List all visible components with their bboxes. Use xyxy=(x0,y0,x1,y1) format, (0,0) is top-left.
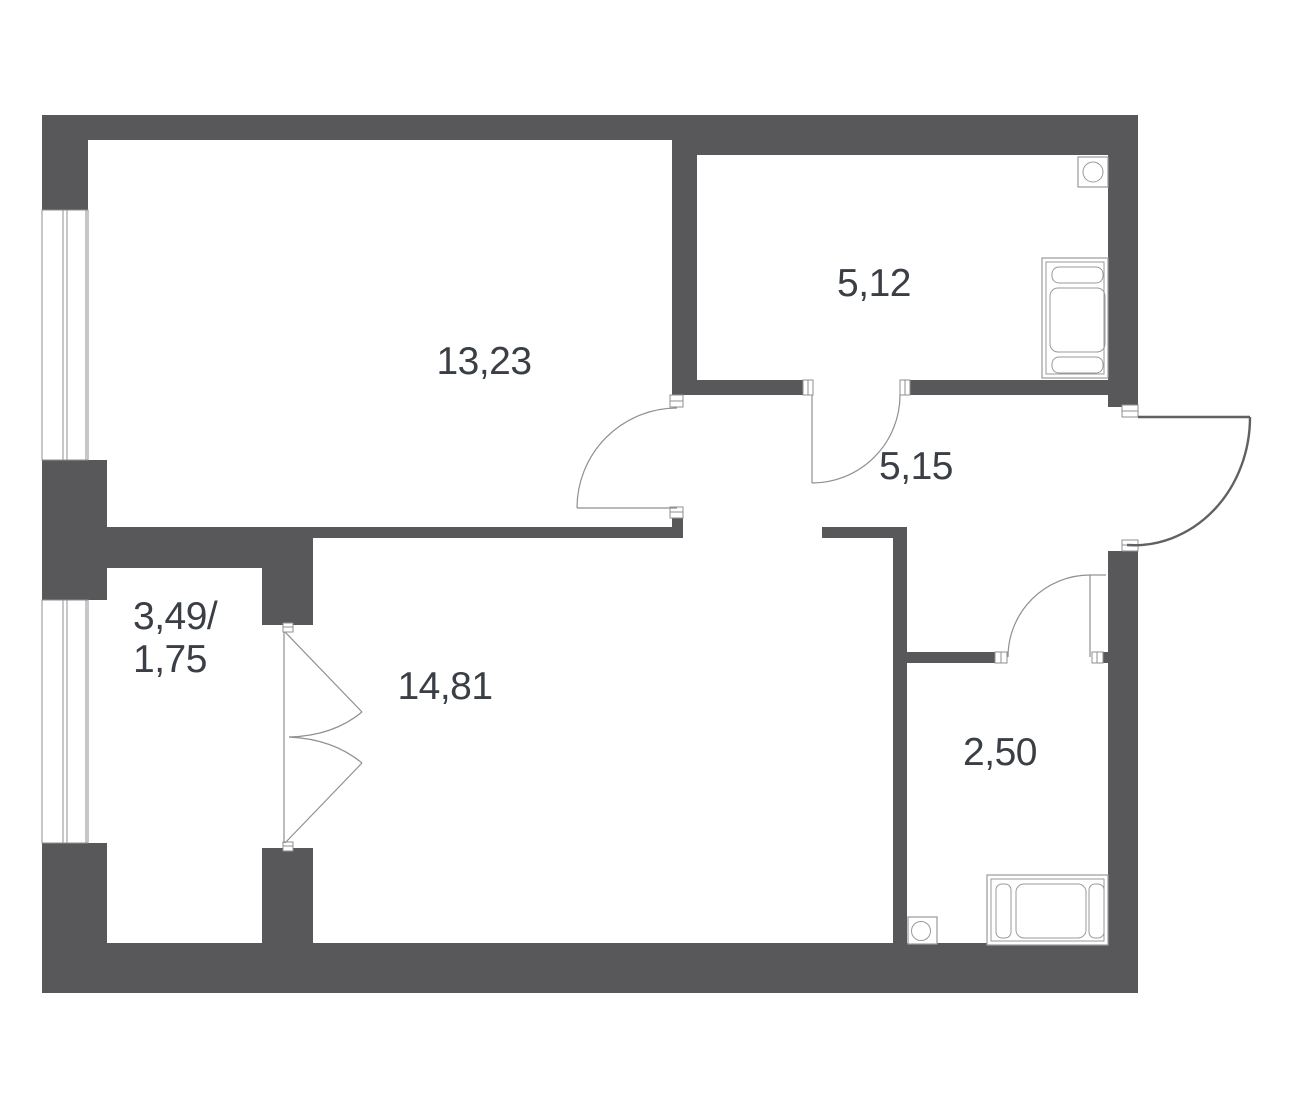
balcony-door xyxy=(284,632,362,843)
entrance-door xyxy=(1127,417,1250,545)
wall-room1-right xyxy=(672,140,697,395)
wall-balcony-top xyxy=(107,527,262,568)
wall-left-upper xyxy=(42,140,88,210)
walls xyxy=(42,115,1138,993)
room-label-balcony-line2: 1,75 xyxy=(133,638,207,681)
door-jambs xyxy=(283,380,1138,851)
jamb xyxy=(670,395,683,407)
window-room-13-23-icon xyxy=(42,210,88,460)
wall-bottom xyxy=(42,943,1138,993)
floor-plan: 13,23 5,12 5,15 14,81 2,50 3,49/ 1,75 xyxy=(0,0,1300,1120)
door-swing-arc xyxy=(1127,417,1250,545)
wall-balcony-pier-lower xyxy=(262,848,313,943)
jamb xyxy=(283,623,293,632)
room-label-5-15: 5,15 xyxy=(879,445,953,488)
jamb xyxy=(1092,652,1103,663)
bathtub-icon xyxy=(987,875,1108,945)
door-room-13-23 xyxy=(577,408,677,508)
wall-right-upper xyxy=(1108,115,1138,407)
door-swing-arc xyxy=(577,408,677,508)
door-room-2-50 xyxy=(1008,575,1106,657)
floor-plan-canvas: 13,23 5,12 5,15 14,81 2,50 3,49/ 1,75 xyxy=(0,0,1300,1120)
wall-room1-bottom xyxy=(262,527,683,538)
wall-room5-top-right xyxy=(1103,652,1110,663)
wall-room2-bottom-left xyxy=(697,380,803,395)
wall-top-left-section xyxy=(42,115,697,140)
door-leaf-upper xyxy=(285,632,362,712)
doors xyxy=(284,395,1250,843)
jamb xyxy=(283,842,293,851)
room-label-14-81: 14,81 xyxy=(397,665,492,708)
room-label-13-23: 13,23 xyxy=(436,340,531,383)
room-label-5-12: 5,12 xyxy=(837,262,911,305)
window-frame xyxy=(42,600,88,843)
window-balcony-icon xyxy=(42,600,88,843)
wall-room5-top-left xyxy=(907,652,995,663)
door-leaf-lower xyxy=(285,763,362,843)
wall-top-right-section xyxy=(672,115,1138,155)
wall-balcony-pier-upper xyxy=(262,527,313,625)
washer-icon xyxy=(1078,157,1108,187)
wall-room2-bottom-right xyxy=(910,380,1110,395)
jamb xyxy=(900,380,910,395)
toilet-icon xyxy=(908,917,937,944)
window-frame xyxy=(42,210,88,460)
jamb xyxy=(995,652,1007,663)
jamb xyxy=(803,380,813,395)
jamb xyxy=(670,507,683,518)
jamb xyxy=(1122,405,1138,417)
fixtures xyxy=(908,157,1108,945)
door-swing-arc xyxy=(1008,575,1090,657)
room-label-2-50: 2,50 xyxy=(963,731,1037,774)
door-swing-arc-lower xyxy=(289,737,362,763)
wall-right-lower xyxy=(1108,551,1138,993)
door-swing-arc-upper xyxy=(289,712,362,737)
wall-left-pier xyxy=(42,460,107,600)
bathtub-icon xyxy=(1042,258,1108,378)
room-label-balcony-line1: 3,49/ xyxy=(133,595,218,638)
wall-room4-room5-divider xyxy=(893,527,907,945)
